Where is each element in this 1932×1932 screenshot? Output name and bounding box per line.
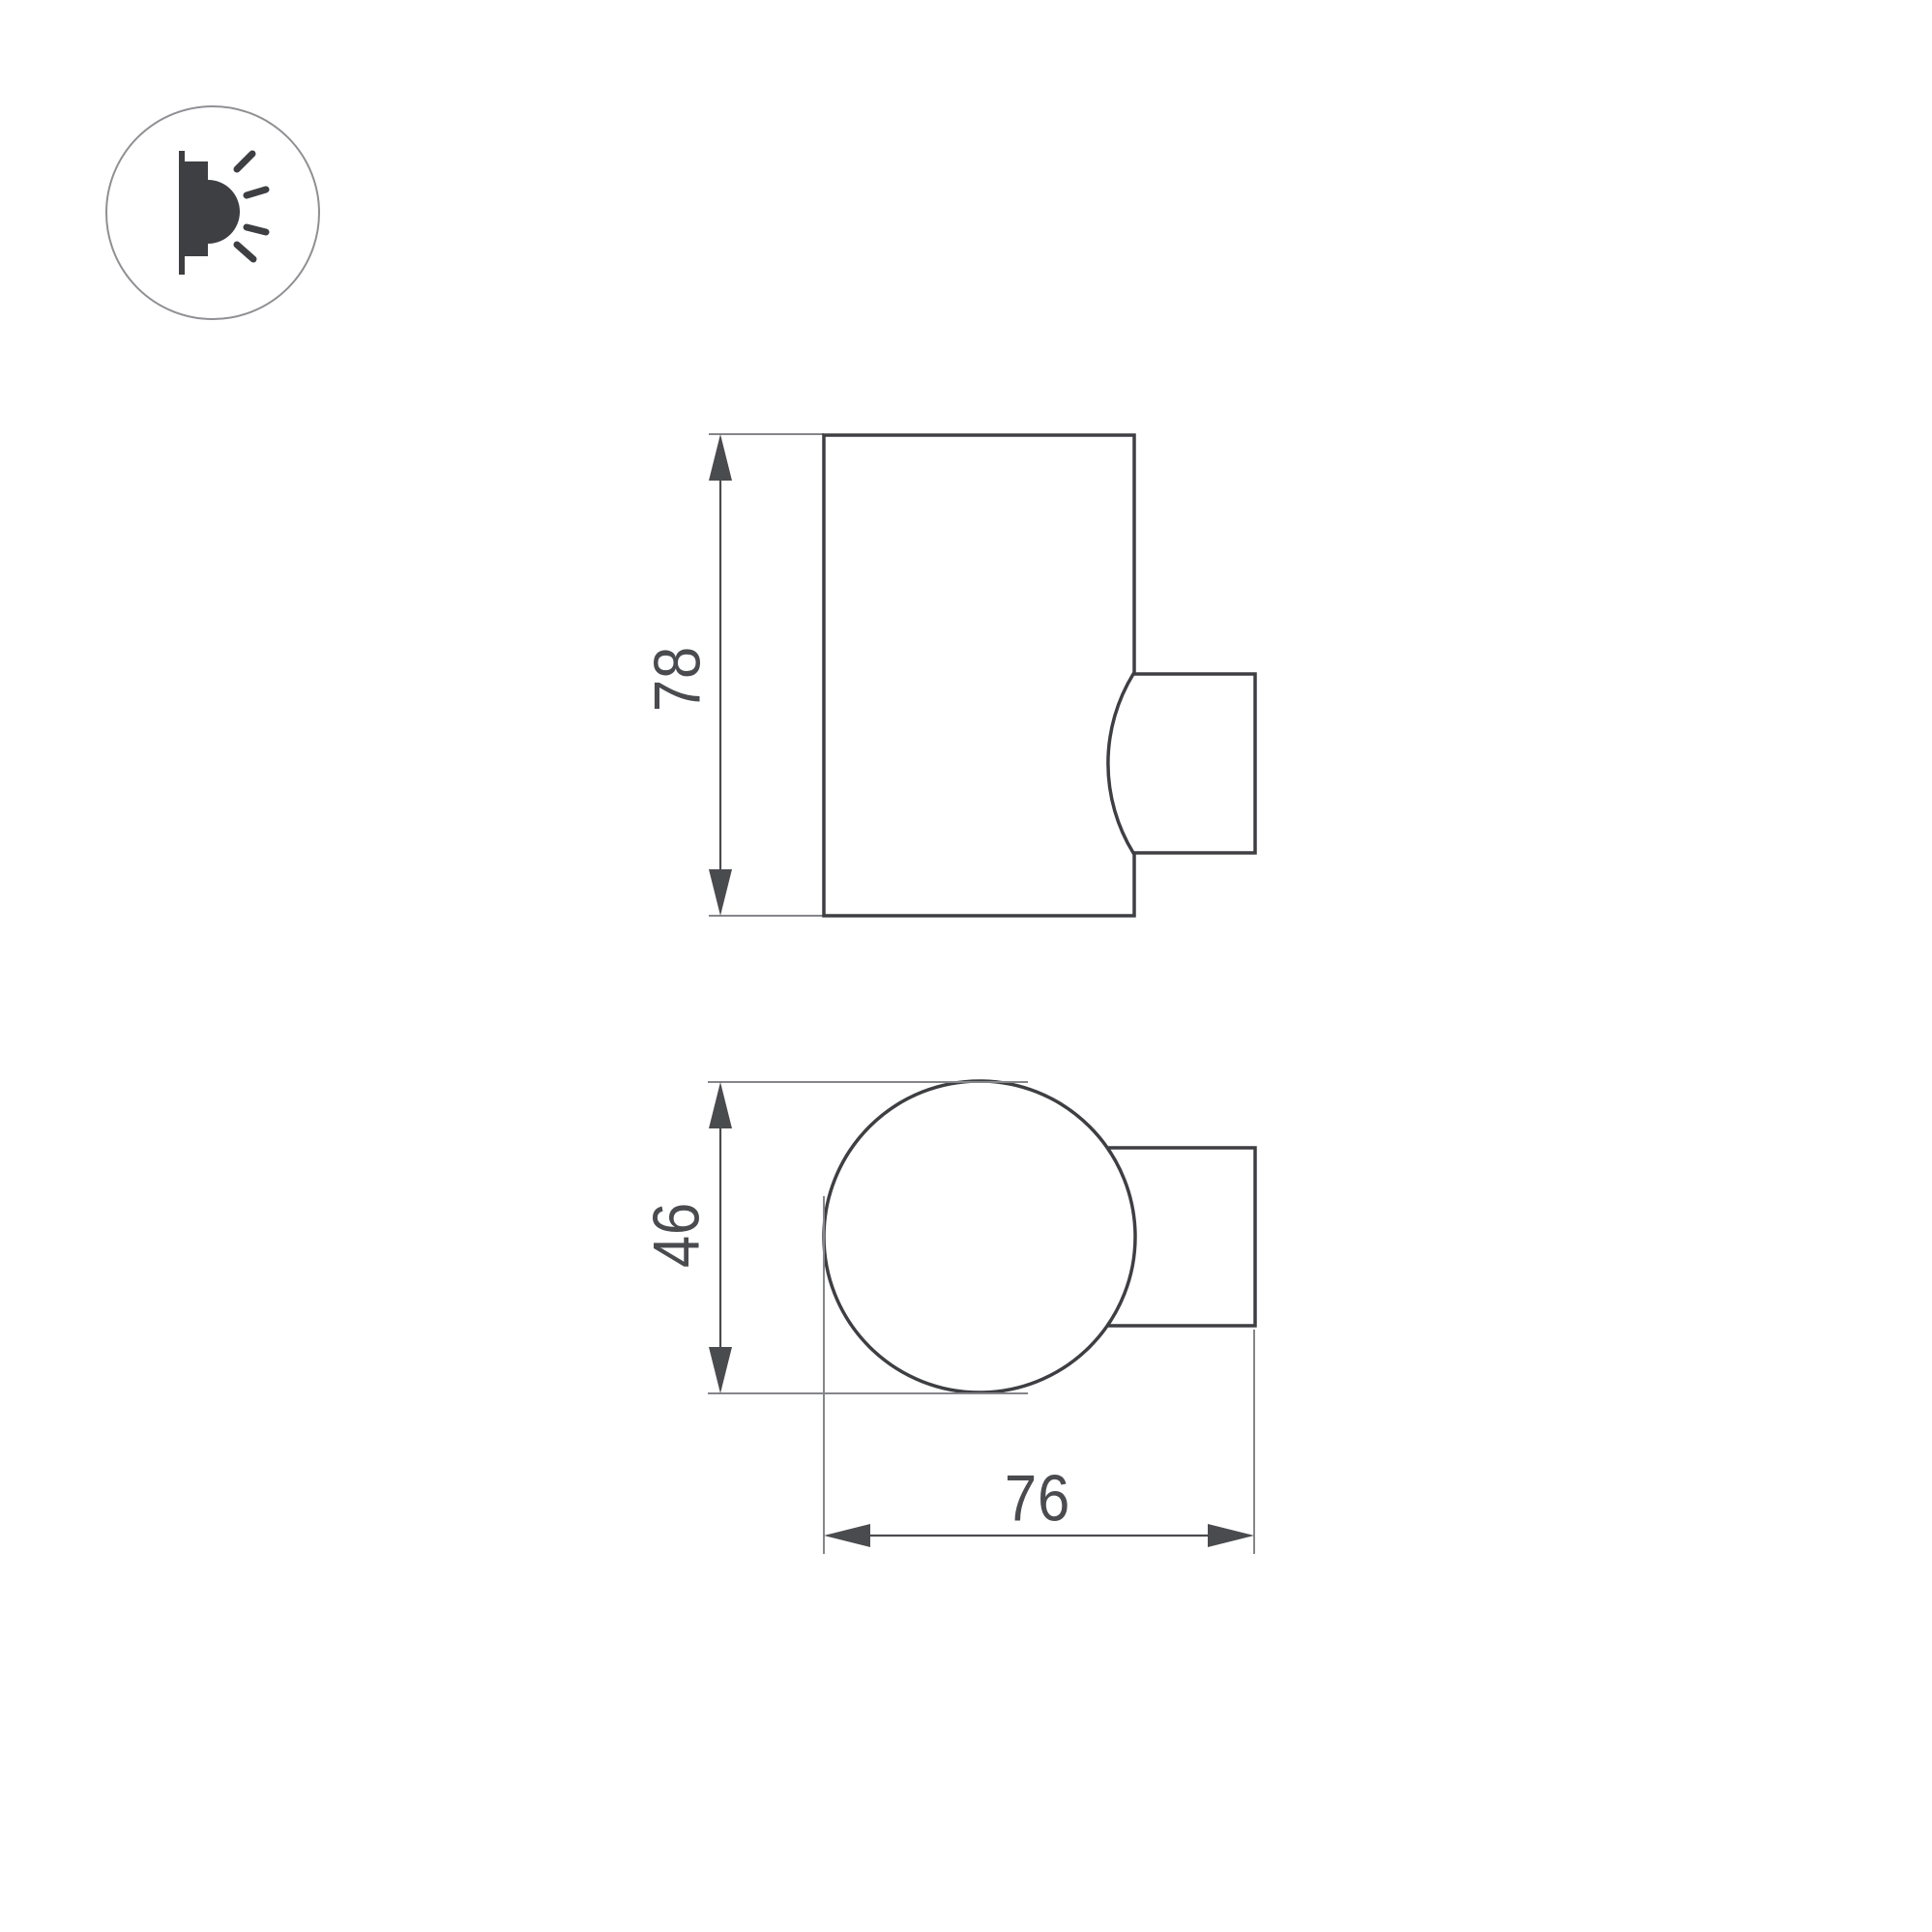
depth-arrow-right xyxy=(1208,1524,1254,1547)
height-arrow-up xyxy=(709,434,732,481)
icon-light-ray-4 xyxy=(237,245,253,259)
height-arrow-down xyxy=(709,869,732,916)
icon-light-ray-1 xyxy=(237,154,252,169)
depth-arrow-left xyxy=(824,1524,870,1547)
icon-lamp-body xyxy=(185,161,208,256)
diameter-arrow-down xyxy=(709,1347,732,1393)
wall-light-icon xyxy=(106,106,319,319)
icon-light-ray-3 xyxy=(247,227,266,232)
side-view: 78 xyxy=(640,434,1255,916)
diameter-dimension-label: 46 xyxy=(639,1202,713,1268)
icon-wall-line xyxy=(179,151,185,275)
icon-lamp-dome xyxy=(208,180,240,244)
side-view-mount xyxy=(1108,674,1255,853)
icon-light-ray-2 xyxy=(247,190,266,195)
height-dimension-label: 78 xyxy=(640,646,714,712)
diameter-arrow-up xyxy=(709,1082,732,1128)
side-view-body xyxy=(824,435,1134,916)
top-view: 46 76 xyxy=(639,1081,1255,1554)
depth-dimension-label: 76 xyxy=(1005,1461,1070,1535)
top-view-body-circle xyxy=(824,1081,1135,1392)
drawing-page: 78 46 76 xyxy=(0,0,1932,1932)
technical-drawing-canvas: 78 46 76 xyxy=(0,0,1932,1932)
